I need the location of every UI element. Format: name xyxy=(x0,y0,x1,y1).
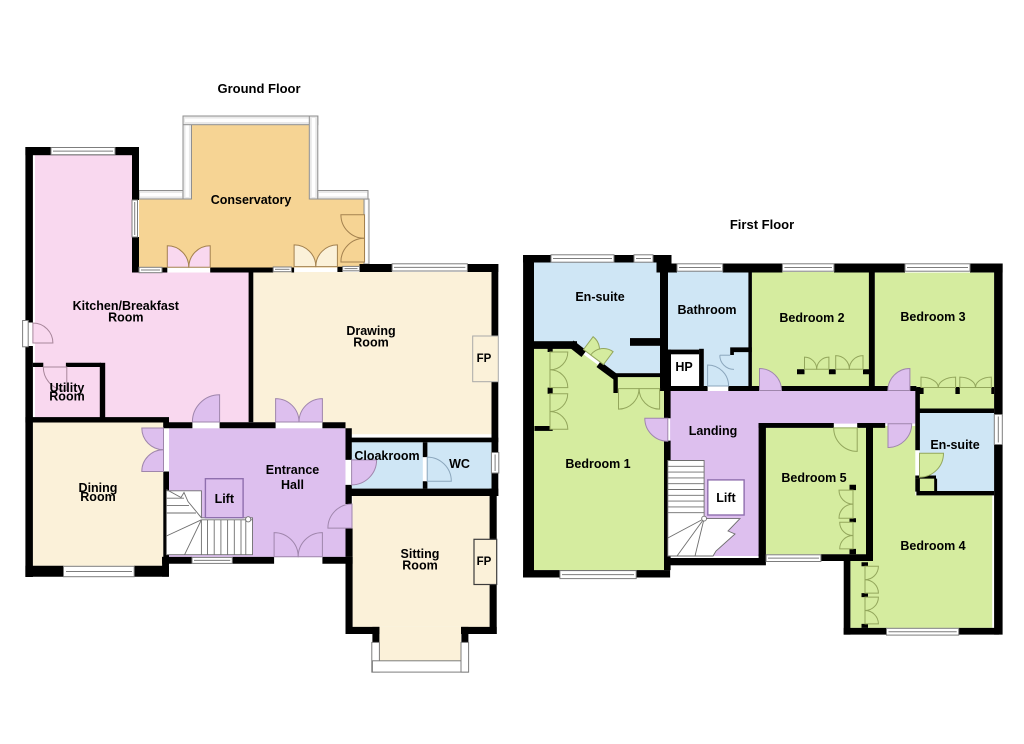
svg-text:HP: HP xyxy=(675,360,692,374)
svg-text:Ground Floor: Ground Floor xyxy=(217,81,300,96)
svg-text:Room: Room xyxy=(49,390,84,404)
svg-text:Hall: Hall xyxy=(281,478,304,492)
svg-text:Landing: Landing xyxy=(689,424,738,438)
svg-text:Bathroom: Bathroom xyxy=(677,303,736,317)
svg-text:Bedroom 1: Bedroom 1 xyxy=(565,457,630,471)
svg-text:Room: Room xyxy=(80,490,115,504)
svg-text:En-suite: En-suite xyxy=(930,438,979,452)
svg-text:Room: Room xyxy=(353,336,388,350)
svg-text:FP: FP xyxy=(477,556,492,568)
svg-text:Cloakroom: Cloakroom xyxy=(354,449,419,463)
svg-text:Lift: Lift xyxy=(716,491,736,505)
svg-text:Conservatory: Conservatory xyxy=(211,193,292,207)
svg-text:En-suite: En-suite xyxy=(575,290,624,304)
svg-text:Room: Room xyxy=(402,559,437,573)
svg-text:WC: WC xyxy=(449,457,470,471)
svg-text:Lift: Lift xyxy=(215,492,235,506)
svg-text:Bedroom 5: Bedroom 5 xyxy=(781,471,846,485)
svg-text:FP: FP xyxy=(477,353,492,365)
svg-text:Entrance: Entrance xyxy=(266,463,320,477)
svg-text:Bedroom 3: Bedroom 3 xyxy=(900,310,965,324)
svg-text:Room: Room xyxy=(108,311,143,325)
svg-text:Bedroom 4: Bedroom 4 xyxy=(900,539,965,553)
svg-text:First Floor: First Floor xyxy=(730,217,794,232)
svg-text:Bedroom 2: Bedroom 2 xyxy=(779,311,844,325)
